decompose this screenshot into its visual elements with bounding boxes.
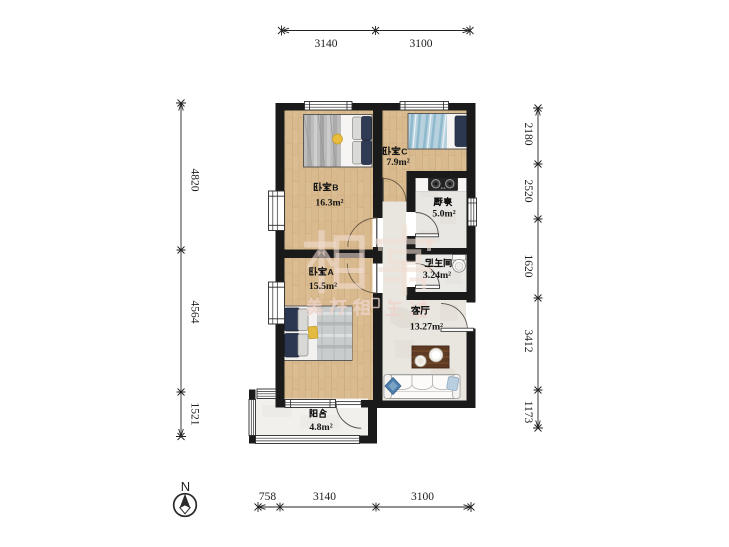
svg-text:3140: 3140: [315, 38, 338, 50]
svg-text:3.24m²: 3.24m²: [423, 270, 451, 281]
svg-text:16.3m²: 16.3m²: [315, 198, 343, 209]
svg-text:15.5m²: 15.5m²: [309, 281, 337, 292]
svg-text:4820: 4820: [189, 169, 201, 192]
svg-text:758: 758: [259, 491, 277, 503]
svg-text:3140: 3140: [313, 491, 336, 503]
svg-text:2180: 2180: [522, 123, 534, 146]
svg-text:C: C: [401, 146, 407, 156]
svg-text:N: N: [181, 479, 190, 494]
svg-text:1173: 1173: [522, 401, 534, 424]
svg-text:1620: 1620: [522, 255, 534, 278]
svg-text:2520: 2520: [522, 180, 534, 203]
svg-text:3412: 3412: [522, 330, 534, 353]
svg-text:3100: 3100: [411, 491, 434, 503]
svg-text:7.9m²: 7.9m²: [386, 157, 409, 168]
svg-text:3100: 3100: [410, 38, 433, 50]
svg-text:1521: 1521: [189, 403, 201, 426]
svg-text:B: B: [332, 182, 338, 192]
svg-text:13.27m²: 13.27m²: [410, 322, 443, 333]
svg-text:A: A: [328, 267, 334, 277]
svg-text:4564: 4564: [189, 301, 201, 324]
svg-text:5.0m²: 5.0m²: [432, 209, 455, 220]
svg-text:4.8m²: 4.8m²: [309, 422, 332, 433]
